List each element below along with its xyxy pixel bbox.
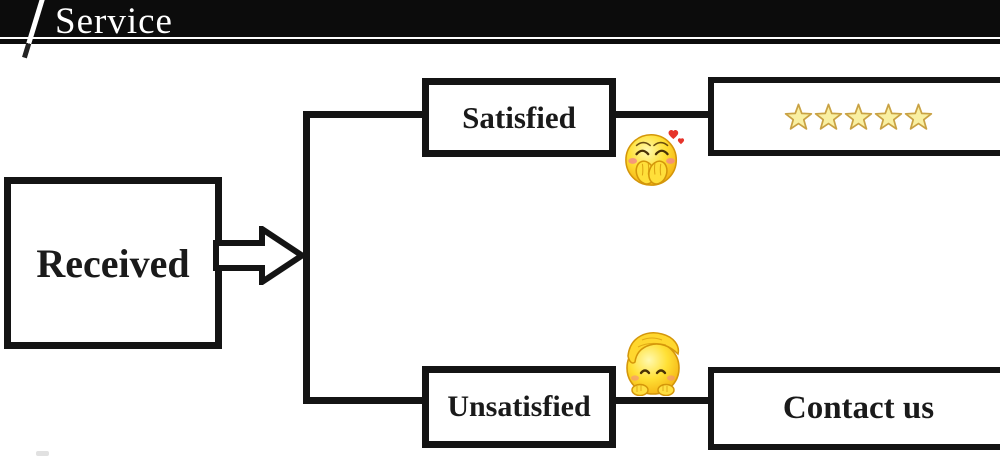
right-arrow-icon	[213, 226, 305, 285]
star-icon	[904, 103, 933, 131]
contact-us-label: Contact us	[783, 390, 934, 427]
satisfied-box: Satisfied	[422, 78, 616, 157]
head-scratch-emoji-icon	[618, 328, 688, 396]
slash-decoration-icon	[22, 0, 45, 58]
satisfied-label: Satisfied	[462, 100, 576, 136]
star-icon	[874, 103, 903, 131]
rating-box	[708, 77, 1000, 156]
section-header: Service	[0, 0, 1000, 44]
heart-icon	[669, 130, 679, 139]
star-icon	[784, 103, 813, 131]
received-label: Received	[36, 240, 189, 287]
received-box: Received	[4, 177, 222, 349]
contact-us-box: Contact us	[708, 367, 1000, 450]
service-flow-diagram: Service Received Satisfied Unsatisfied C…	[0, 0, 1000, 464]
giggling-emoji-icon	[622, 128, 686, 190]
unsatisfied-label: Unsatisfied	[447, 390, 590, 424]
heart-icon	[678, 138, 684, 144]
satisfied-branch-line	[303, 111, 427, 118]
star-icon	[844, 103, 873, 131]
star-icon	[814, 103, 843, 131]
photo-artifact-mark	[36, 451, 49, 456]
unsatisfied-box: Unsatisfied	[422, 366, 616, 448]
section-title: Service	[55, 0, 173, 44]
five-star-rating	[714, 83, 1000, 150]
unsatisfied-branch-line	[303, 397, 427, 404]
